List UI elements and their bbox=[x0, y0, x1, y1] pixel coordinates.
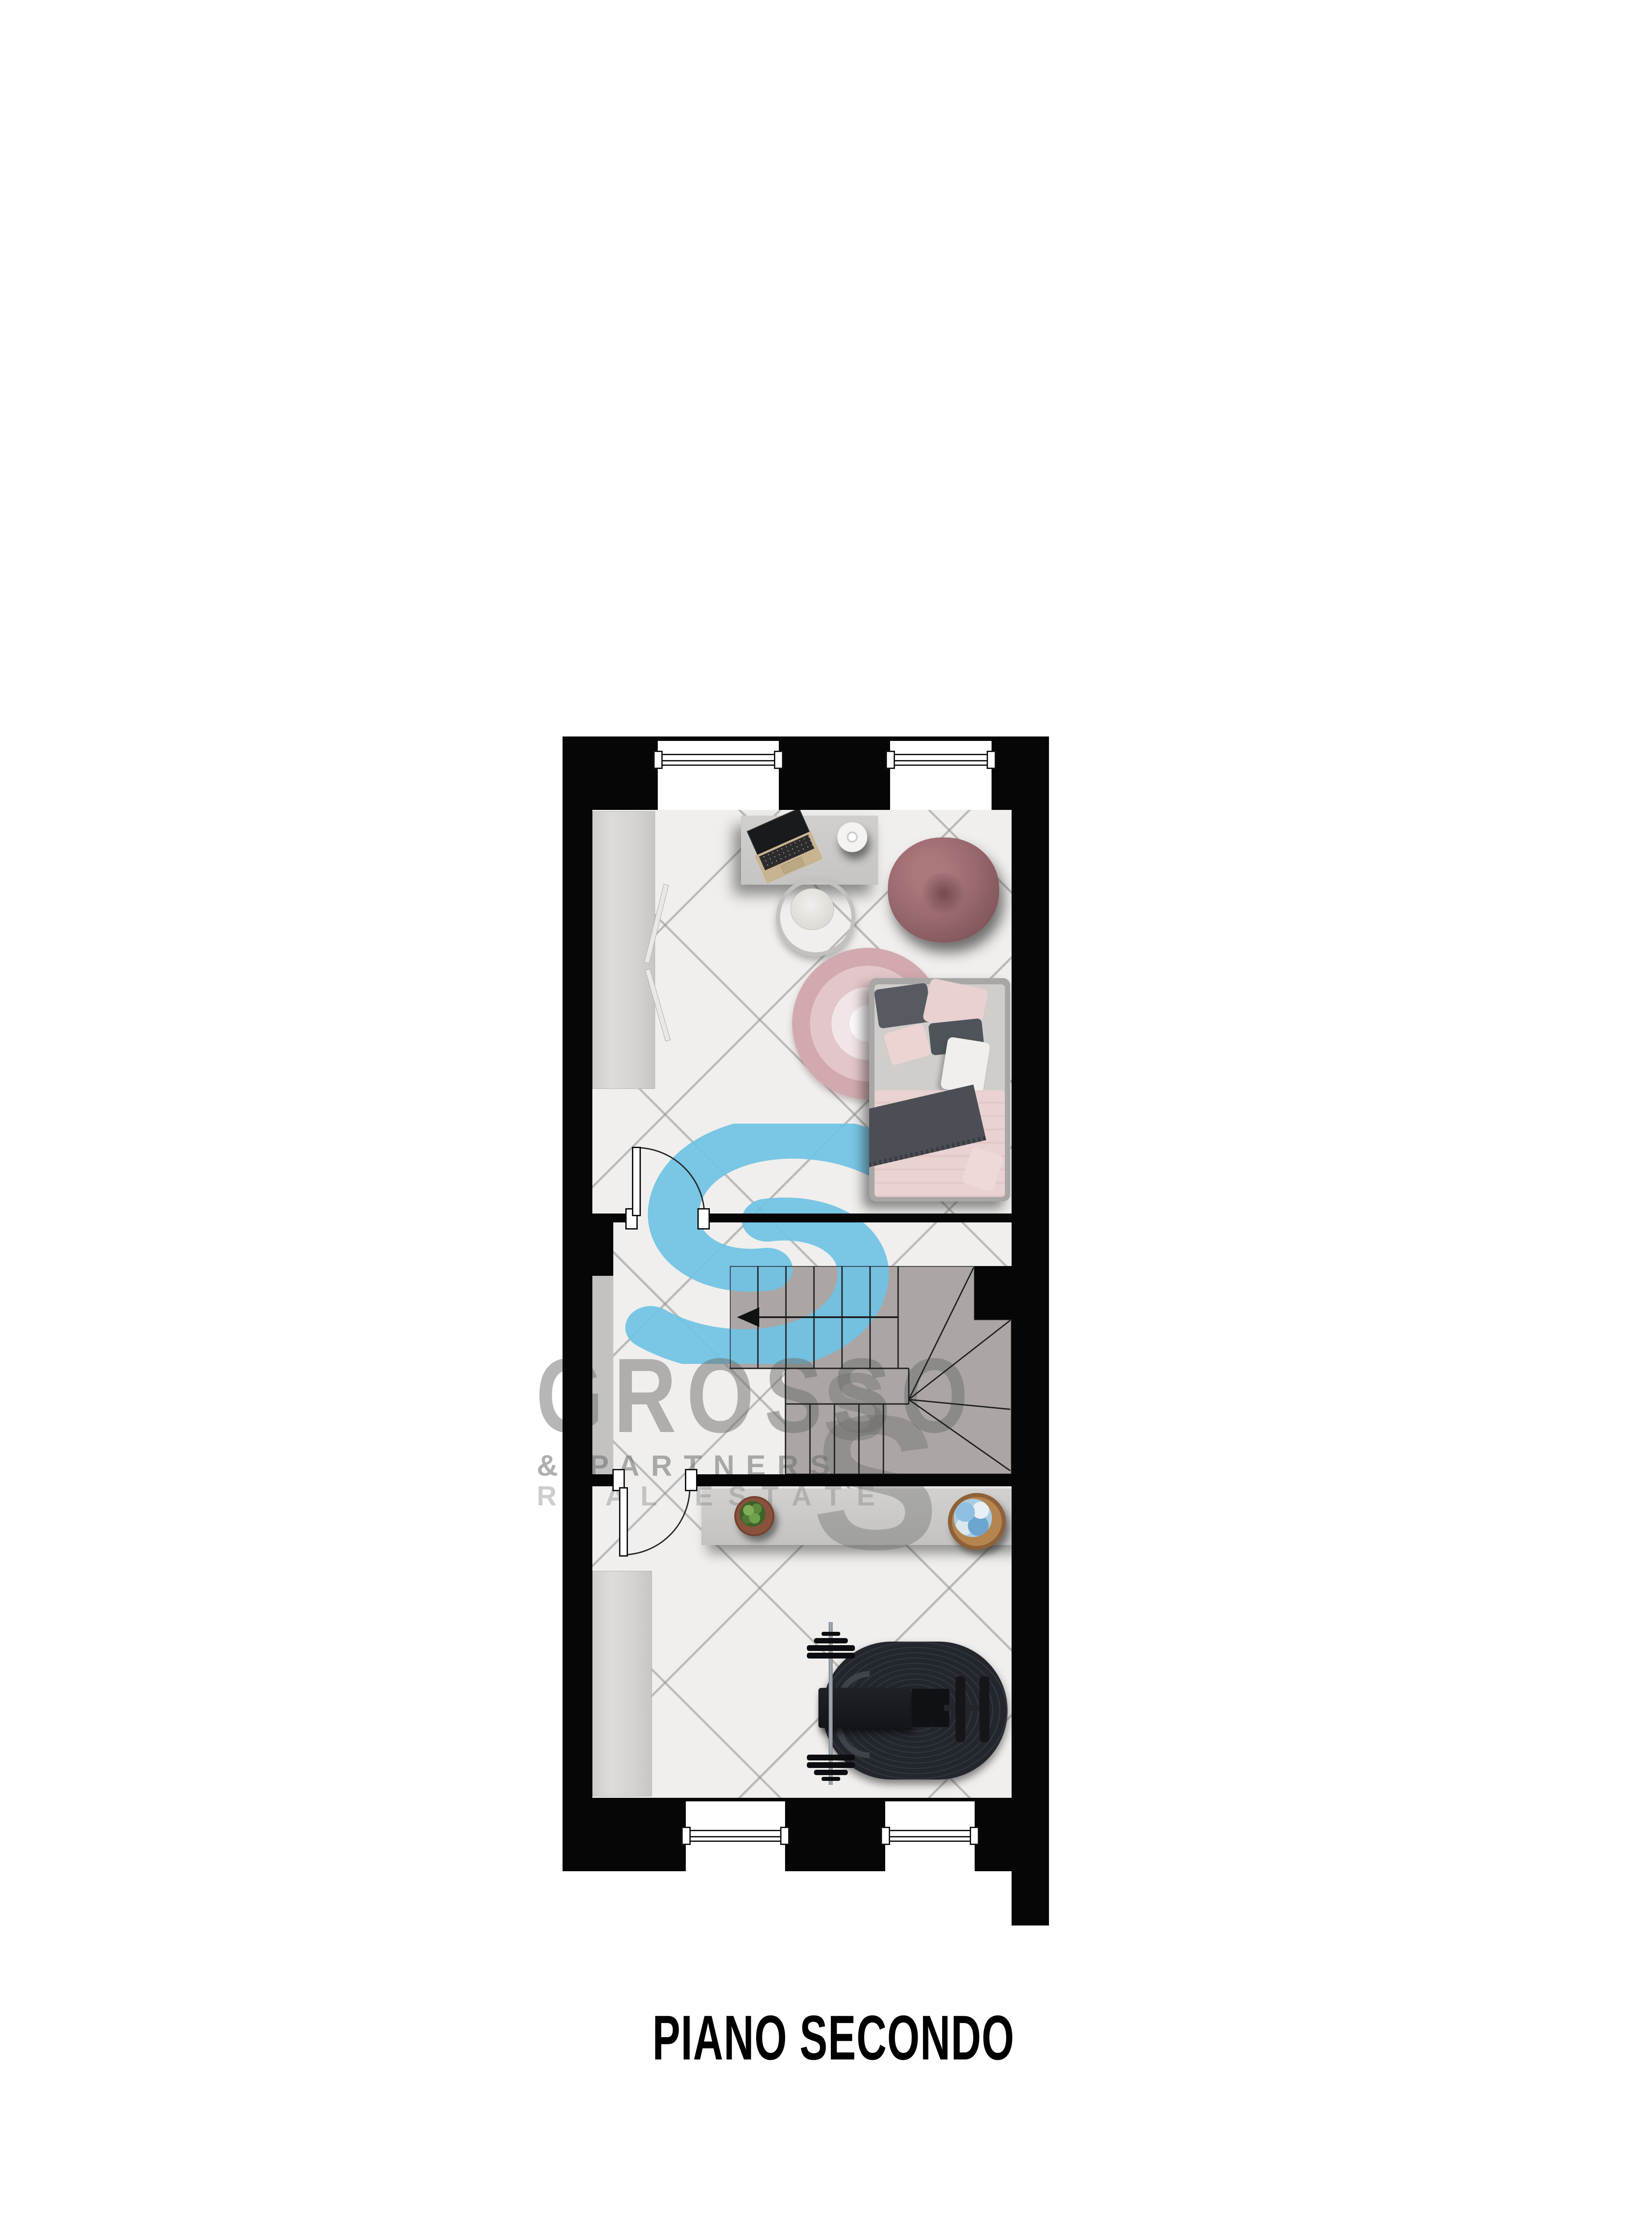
page-title: PIANO SECONDO bbox=[652, 2002, 1005, 2075]
wall-corner-extension bbox=[1012, 1871, 1049, 1926]
direction-arrow bbox=[737, 1307, 759, 1327]
potted-plant bbox=[734, 1496, 774, 1536]
bean-bag bbox=[888, 837, 999, 943]
door-bedroom bbox=[632, 1147, 641, 1216]
door-gym bbox=[619, 1487, 628, 1557]
barbell-plate bbox=[807, 1755, 855, 1760]
barbell-plate bbox=[807, 1653, 855, 1659]
leg-roller bbox=[956, 1676, 965, 1742]
floor-plan: S S GROSSO & PARTNERS REAL ESTATE bbox=[563, 736, 1049, 1871]
pillow-dark bbox=[874, 983, 932, 1029]
wall-segment bbox=[703, 1214, 1012, 1222]
barbell-plate bbox=[807, 1645, 855, 1651]
barbell-plate bbox=[807, 1762, 855, 1768]
leg-roller bbox=[980, 1676, 989, 1742]
stair-treads bbox=[730, 1266, 1012, 1474]
wall-left bbox=[563, 736, 592, 1871]
wall-segment bbox=[975, 1266, 1012, 1319]
wall-segment bbox=[691, 1474, 1012, 1486]
barbell-plate bbox=[814, 1770, 848, 1775]
wall-segment bbox=[592, 1222, 613, 1276]
barbell-plate bbox=[822, 1632, 840, 1636]
wardrobe-bedroom bbox=[592, 811, 655, 1089]
laundry-basket bbox=[948, 1493, 1006, 1550]
desk-lamp bbox=[837, 822, 867, 852]
window bbox=[886, 750, 996, 769]
window bbox=[681, 1826, 790, 1845]
wall-right bbox=[1012, 736, 1049, 1871]
door-jamb bbox=[697, 1208, 710, 1230]
desk-chair bbox=[776, 878, 855, 956]
single-bed bbox=[869, 978, 1010, 1201]
barbell-plate bbox=[822, 1777, 840, 1781]
barbell-plate bbox=[814, 1638, 848, 1643]
window bbox=[653, 750, 783, 769]
wardrobe-gym bbox=[592, 1571, 652, 1796]
page: { "title": { "text": "PIANO SECONDO" }, … bbox=[0, 0, 1652, 2225]
window bbox=[881, 1826, 979, 1845]
door-jamb bbox=[685, 1469, 697, 1491]
